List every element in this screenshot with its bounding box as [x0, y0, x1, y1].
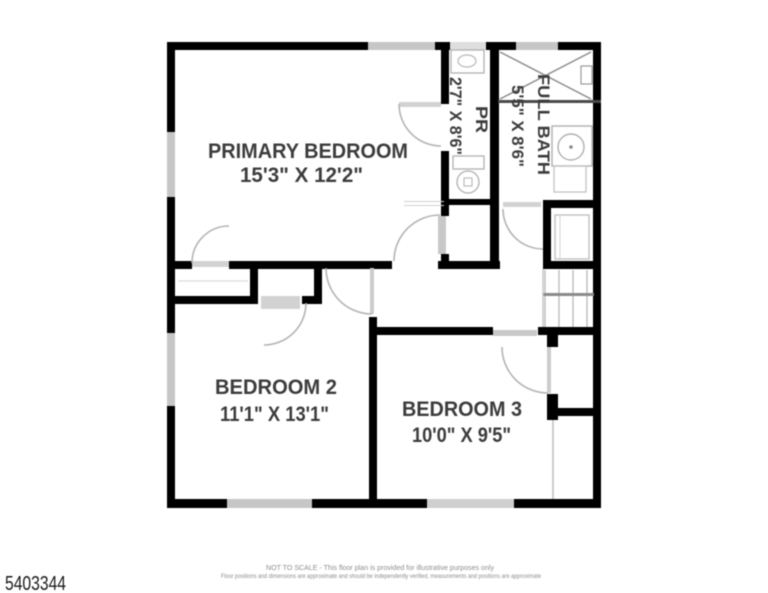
svg-text:NOT TO SCALE - This floor plan: NOT TO SCALE - This floor plan is provid…	[266, 565, 494, 572]
svg-text:2'7" X 8'6": 2'7" X 8'6"	[446, 77, 465, 155]
svg-text:11'1" X 13'1": 11'1" X 13'1"	[220, 403, 329, 426]
svg-text:5'5" X 8'6": 5'5" X 8'6"	[508, 85, 527, 167]
svg-text:10'0" X 9'5": 10'0" X 9'5"	[412, 424, 511, 447]
svg-text:BEDROOM 3: BEDROOM 3	[402, 398, 522, 421]
svg-text:15'3" X 12'2": 15'3" X 12'2"	[240, 164, 363, 187]
svg-text:FULL BATH: FULL BATH	[534, 74, 553, 175]
svg-text:5403344: 5403344	[5, 573, 66, 593]
svg-text:PR: PR	[472, 106, 491, 133]
svg-text:BEDROOM 2: BEDROOM 2	[215, 376, 337, 399]
svg-text:Floor positions and dimensions: Floor positions and dimensions are appro…	[221, 573, 541, 580]
svg-text:PRIMARY BEDROOM: PRIMARY BEDROOM	[208, 140, 408, 163]
